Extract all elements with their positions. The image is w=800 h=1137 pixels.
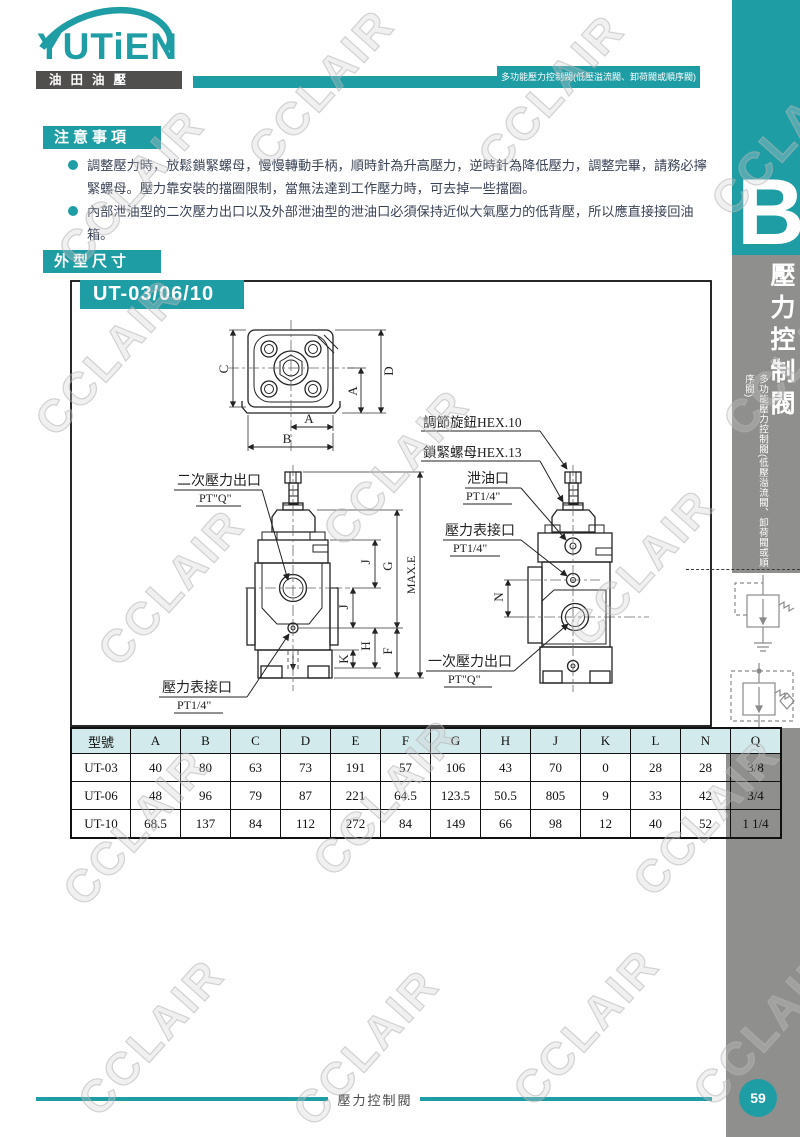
column-header: F (381, 728, 431, 754)
table-cell: 28 (631, 754, 681, 782)
gauge-port-front-size: PT1/4" (177, 698, 211, 712)
table-cell: 221 (331, 782, 381, 810)
table-row: UT-064896798722164.5123.550.5805933423/4 (71, 782, 781, 810)
table-cell: 84 (381, 810, 431, 839)
drain-port-size: PT1/4" (466, 489, 500, 503)
dim-label-j: J (336, 604, 351, 609)
column-header: C (231, 728, 281, 754)
primary-outlet-size: PT"Q" (448, 672, 481, 686)
table-cell: 0 (581, 754, 631, 782)
table-cell: UT-10 (71, 810, 131, 839)
notice-item: 內部泄油型的二次壓力出口以及外部泄油型的泄油口必須保持近似大氣壓力的低背壓，所以… (68, 200, 710, 246)
column-header: E (331, 728, 381, 754)
dim-label-a: A (345, 386, 360, 396)
table-cell: 87 (281, 782, 331, 810)
table-cell: 48 (131, 782, 181, 810)
table-cell: 3/8 (731, 754, 782, 782)
secondary-outlet-label: 二次壓力出口 (177, 473, 261, 489)
table-row: UT-1068.5137841122728414966981240521 1/4 (71, 810, 781, 839)
gauge-port-front-label: 壓力表接口 (162, 679, 232, 696)
column-header: N (681, 728, 731, 754)
table-cell: 96 (181, 782, 231, 810)
header-banner: 多功能壓力控制閥(低壓溢流閥、卸荷閥或順序閥) (497, 66, 700, 88)
column-header: Q (731, 728, 782, 754)
top-view: C D A A B (216, 320, 396, 453)
notice-text: 內部泄油型的二次壓力出口以及外部泄油型的泄油口必須保持近似大氣壓力的低背壓，所以… (87, 200, 710, 246)
table-cell: 66 (481, 810, 531, 839)
table-cell: 1 1/4 (731, 810, 782, 839)
logo-subtext: 油田油壓 (36, 71, 182, 89)
table-cell: 137 (181, 810, 231, 839)
table-cell: UT-06 (71, 782, 131, 810)
table-cell: 149 (431, 810, 481, 839)
adjust-knob-label: 調節旋鈕HEX.10 (423, 415, 522, 430)
notice-list: 調整壓力時，放鬆鎖緊螺母，慢慢轉動手柄，順時針為升高壓力，逆時針為降低壓力，調整… (68, 154, 710, 246)
footer-title: 壓力控制閥 (330, 1090, 420, 1109)
front-view: 二次壓力出口 PT"Q" 壓力表接口 PT1/4" MAX.E G F J J … (159, 465, 424, 713)
drain-port-label: 泄油口 (467, 471, 509, 487)
table-cell: 112 (281, 810, 331, 839)
model-label: UT-03/06/10 (80, 280, 244, 309)
hydraulic-symbols (723, 575, 800, 727)
logo-swoosh-icon (30, 4, 190, 64)
table-cell: 33 (631, 782, 681, 810)
technical-drawing: C D A A B (70, 280, 712, 727)
table-cell: 57 (381, 754, 431, 782)
notice-item: 調整壓力時，放鬆鎖緊螺母，慢慢轉動手柄，順時針為升高壓力，逆時針為降低壓力，調整… (68, 154, 710, 200)
table-cell: 12 (581, 810, 631, 839)
column-header: G (431, 728, 481, 754)
dimension-table: 型號ABCDEFGHJKLNQUT-0340806373191571064370… (70, 727, 782, 839)
watermark: CCLAIR (237, 0, 405, 176)
column-header: L (631, 728, 681, 754)
catalog-page: CCLAIR CCLAIR CCLAIR CCLAIR CCLAIR CCLAI… (0, 0, 800, 1137)
column-header: J (531, 728, 581, 754)
side-view: N 調節旋鈕HEX.10 鎖緊螺母HEX.13 泄油口 PT1/4" 壓力表接口… (421, 415, 649, 692)
table-cell: 42 (681, 782, 731, 810)
table-cell: 43 (481, 754, 531, 782)
table-cell: 70 (531, 754, 581, 782)
table-cell: 80 (181, 754, 231, 782)
column-header: H (481, 728, 531, 754)
notice-text: 調整壓力時，放鬆鎖緊螺母，慢慢轉動手柄，順時針為升高壓力，逆時針為降低壓力，調整… (87, 154, 710, 200)
bullet-icon (68, 206, 78, 216)
dim-label-n: N (491, 592, 506, 602)
gauge-port-side-label: 壓力表接口 (445, 522, 515, 539)
table-cell: 40 (631, 810, 681, 839)
column-header: B (181, 728, 231, 754)
lock-nut-label: 鎖緊螺母HEX.13 (423, 445, 522, 460)
section-letter: B (737, 165, 800, 259)
table-cell: 3/4 (731, 782, 782, 810)
page-number-badge: 59 (739, 1079, 777, 1117)
table-cell: 40 (131, 754, 181, 782)
table-cell: 28 (681, 754, 731, 782)
table-cell: 79 (231, 782, 281, 810)
table-cell: 50.5 (481, 782, 531, 810)
table-cell: 98 (531, 810, 581, 839)
footer-rule-right (420, 1097, 712, 1101)
dim-label-k: K (336, 654, 351, 664)
gauge-port-side-size: PT1/4" (453, 541, 487, 555)
table-cell: 9 (581, 782, 631, 810)
dim-label-c: C (216, 365, 231, 374)
table-cell: UT-03 (71, 754, 131, 782)
table-cell: 191 (331, 754, 381, 782)
sidebar-subtitle: 多功能壓力控制閥(低壓溢流閥、卸荷閥或順序閥) (741, 374, 769, 570)
dimensions-heading: 外型尺寸 (43, 250, 161, 273)
dim-label-g: G (380, 561, 395, 570)
primary-outlet-label: 一次壓力出口 (428, 654, 512, 670)
table-cell: 68.5 (131, 810, 181, 839)
sidebar-divider (686, 569, 800, 570)
table-cell: 63 (231, 754, 281, 782)
table-cell: 272 (331, 810, 381, 839)
dim-label-j: J (358, 559, 373, 564)
column-header: K (581, 728, 631, 754)
table-cell: 123.5 (431, 782, 481, 810)
dim-label-h: H (358, 641, 373, 650)
drawing-border (71, 281, 711, 726)
table-cell: 106 (431, 754, 481, 782)
dim-label-b: B (283, 431, 292, 446)
column-header: 型號 (71, 728, 131, 754)
table-cell: 805 (531, 782, 581, 810)
table-cell: 52 (681, 810, 731, 839)
dim-label-f: F (380, 647, 395, 654)
watermark: CCLAIR (502, 938, 670, 1117)
watermark: CCLAIR (282, 958, 450, 1137)
table-row: UT-0340806373191571064370028283/8 (71, 754, 781, 782)
dim-label-a: A (304, 411, 314, 426)
secondary-outlet-size: PT"Q" (199, 491, 232, 505)
table-cell: 64.5 (381, 782, 431, 810)
bullet-icon (68, 160, 78, 170)
table-cell: 84 (231, 810, 281, 839)
column-header: A (131, 728, 181, 754)
footer-rule-left (36, 1097, 328, 1101)
dim-label-d: D (381, 366, 396, 375)
dim-label-max-e: MAX.E (404, 556, 418, 594)
table-cell: 73 (281, 754, 331, 782)
column-header: D (281, 728, 331, 754)
notice-heading: 注意事項 (43, 126, 161, 149)
relief-valve-symbol-icon (735, 575, 794, 651)
unloading-valve-symbol-icon (731, 663, 794, 727)
